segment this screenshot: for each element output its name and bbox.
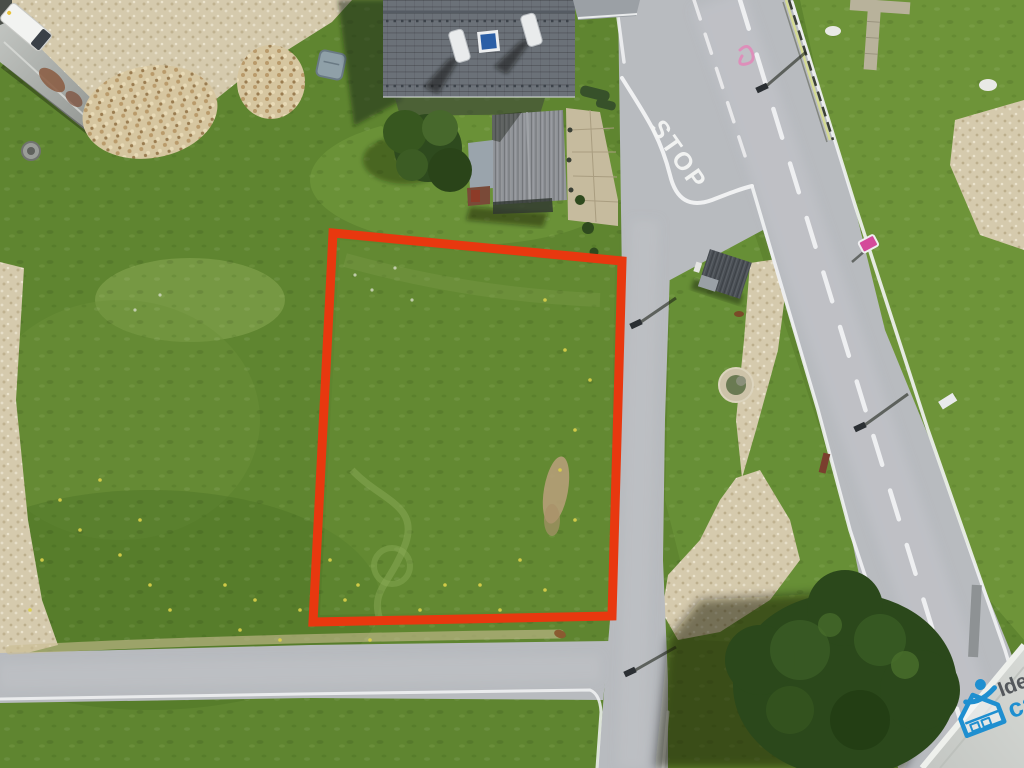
white-rock <box>825 26 841 36</box>
small-animal <box>734 311 744 317</box>
lean-to-roof <box>468 140 493 190</box>
woodpile-small <box>237 45 305 119</box>
red-door <box>471 190 480 202</box>
white-rock <box>979 79 997 91</box>
planter-gravel <box>736 376 746 386</box>
dirt-patch <box>544 504 560 536</box>
water-tank <box>316 50 347 81</box>
aerial-photo-land-plot: STOP <box>0 0 1024 768</box>
bird-bath-center <box>27 147 35 155</box>
skylight <box>480 33 496 49</box>
